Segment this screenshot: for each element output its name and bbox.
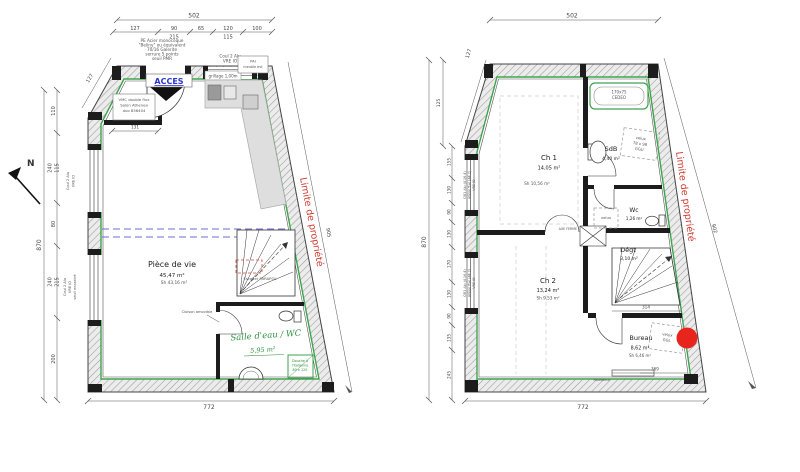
dim: 130 (447, 230, 452, 238)
window-left2-label: seuil encastré (73, 274, 77, 300)
living-sh: Sh 43,16 m² (161, 280, 188, 286)
dim-slant-right: 902 (710, 223, 718, 234)
dim: 115 (55, 163, 61, 173)
tub-label: CEDEO (612, 95, 626, 100)
dim: 130 (447, 290, 452, 298)
grillage-label: grillage 1,00m (208, 73, 237, 78)
pai-box: PAI meuble evt (238, 56, 268, 73)
ch2-sh: Sh 9,53 m² (536, 296, 559, 301)
dim: 127 (130, 26, 140, 32)
dim: 170 (447, 260, 452, 268)
window-left1-label: VRE IO (72, 175, 76, 187)
kitchen-sink (208, 85, 221, 100)
floor-plan-drawing: N (0, 0, 800, 472)
vmc-label: duo 856404 (123, 108, 146, 113)
vmc-label: VMC double flux (119, 97, 151, 102)
bureau-name: Bureau (629, 334, 652, 342)
douche-label: 80 x 120 (293, 368, 308, 372)
dim-top-total: 502 (188, 13, 200, 20)
door-spec-line: seuil PMR (152, 56, 172, 61)
red-dot-marker (677, 328, 698, 349)
dim: 240 (48, 163, 54, 173)
dim: 215 (55, 277, 61, 287)
bureau-area: 8,62 m² (631, 346, 650, 352)
ch2-name: Ch 2 (540, 277, 556, 285)
dim-bureau-width: 314 (642, 305, 650, 310)
dim-closet: 131 (131, 125, 139, 130)
right-window1-label: OB1 Alu (4.16.4) (463, 171, 467, 198)
pai-label-2: meuble evt (243, 65, 263, 69)
dim: 120 (223, 26, 233, 32)
right-window2-label: Allège fixe (44.2) (468, 269, 472, 297)
ch2-area: 13,24 m² (537, 288, 560, 294)
dim: 90 (447, 209, 452, 215)
vmc-label: Salon Athenea (120, 103, 148, 108)
douche-label: l'italienne (292, 364, 309, 368)
dim: 245 (447, 371, 452, 379)
sdb-area: 4,40 m² (602, 156, 620, 162)
right-window1-label: Allège fixe (44.2) (468, 171, 472, 199)
dim-left-total-right: 870 (421, 236, 428, 248)
dim: 155 (447, 158, 452, 166)
north-arrow-head (8, 167, 21, 180)
floor-plan-canvas: N (0, 0, 800, 472)
north-label: N (27, 159, 35, 169)
tub-label: 170x75 (611, 90, 627, 95)
access-label: ACCES (154, 77, 183, 86)
left-plan: ACCES Coul 2 Alu VRE IO grillage 1,00m P… (36, 13, 352, 412)
wc-area: 1,26 m² (626, 216, 643, 221)
dim-left-total: 870 (36, 239, 43, 251)
right-window1-label: VRE IO (472, 179, 476, 191)
dim: 110 (51, 106, 57, 116)
right-window2-label: VRE IO (472, 277, 476, 289)
right-plan: OB1 Alu (4.16.4) Allège fixe (44.2) VRE … (421, 13, 756, 412)
douche-label: Douche à (292, 359, 308, 363)
dim-top-total-right: 502 (566, 13, 578, 20)
dim-slant: 905 (324, 228, 332, 239)
stair-left-plan: Escalier PARAPOL (236, 230, 295, 296)
door-spec-note: PE Acier monocoque "Beliny" ou équivalen… (139, 38, 186, 61)
ch1-sh: Sh 10,56 m² (524, 181, 550, 186)
north-arrow: N (8, 159, 40, 204)
degt-area: 3,10 m² (620, 256, 638, 262)
dim-bottom-total: 772 (203, 404, 215, 411)
dim-chamfer-right: 127 (465, 48, 474, 59)
kitchen-sink-drainer (224, 86, 236, 99)
ch1-name: Ch 1 (541, 154, 557, 162)
living-area: 45,47 m² (159, 272, 184, 279)
axe-ferme-label: AXE FERME (559, 227, 577, 231)
ch1-area: 14,05 m² (538, 166, 561, 172)
window-top-label-2: VRE IO (223, 59, 238, 64)
toilet-ground (279, 311, 293, 321)
dim-chamfer: 127 (85, 73, 95, 84)
window-left1-label: Coul 2 Alu (66, 172, 70, 190)
living-name: Pièce de vie (148, 259, 196, 269)
dim: 65 (198, 26, 204, 32)
dim: 130 (447, 186, 452, 194)
pai-label-1: PAI (250, 59, 256, 64)
dim: 135 (447, 334, 452, 342)
dim: 200 (51, 354, 57, 364)
stair-label: Escalier PARAPOL (243, 276, 277, 281)
kitchen-hob (243, 95, 258, 109)
velux-hall-label: velux (601, 215, 612, 220)
sdb-name: SdB (605, 145, 618, 153)
dim: 215 (169, 35, 179, 41)
radiator-label: Radiateur (594, 378, 611, 382)
dim: 240 (48, 277, 54, 287)
dim: 90 (171, 26, 177, 32)
window-left2-label: Coul 2 Alu (63, 278, 67, 296)
bureau-sh: Sh 6,46 m² (629, 353, 651, 358)
dim-bureau-bottom: 369 (651, 367, 659, 372)
dim: 80 (51, 221, 57, 227)
wc-name: Wc (629, 207, 638, 214)
window-left2-label: VRE IO (68, 281, 72, 293)
right-window2-label: OB1 Alu (4.16.4) (463, 269, 467, 296)
dim: 100 (252, 26, 262, 32)
cloison-label: Cloison amovible (182, 310, 214, 314)
dim: 90 (447, 313, 452, 319)
wc-toilet (646, 215, 666, 226)
dim: 125 (436, 99, 442, 108)
degt-name: Dégt (620, 246, 636, 254)
dim-bottom-total-right: 772 (577, 404, 589, 411)
bathtub: 170x75 CEDEO (590, 83, 648, 109)
dim: 115 (223, 35, 233, 41)
